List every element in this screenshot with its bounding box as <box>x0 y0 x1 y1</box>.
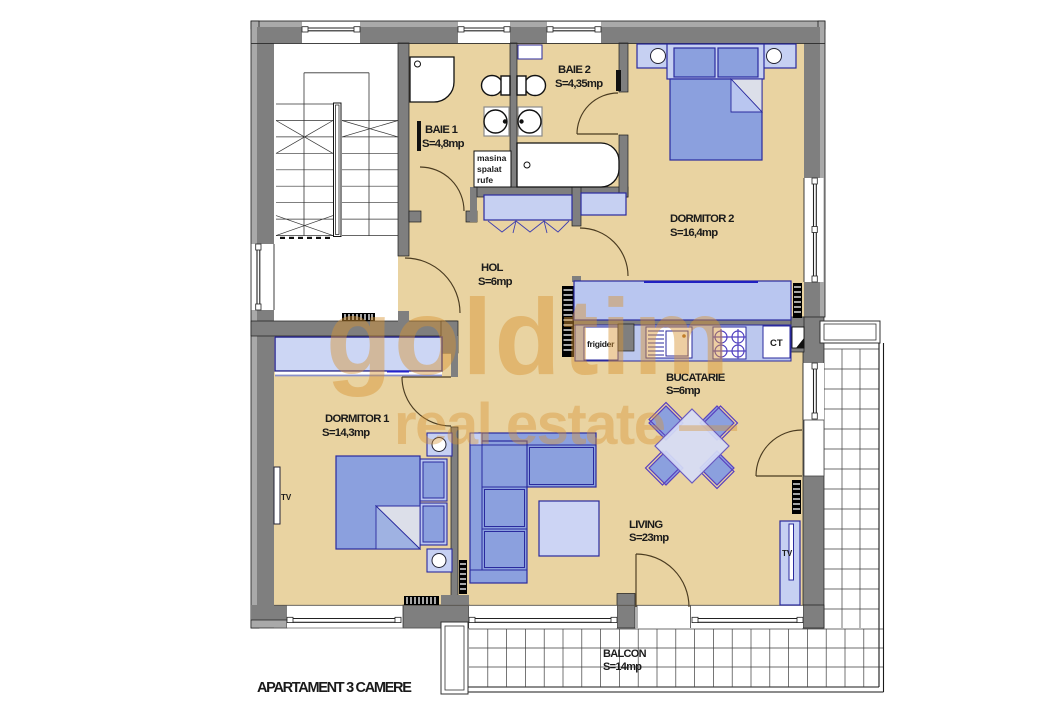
svg-text:LIVING: LIVING <box>629 519 663 531</box>
svg-text:S=14mp: S=14mp <box>603 661 642 673</box>
svg-text:DORMITOR 2: DORMITOR 2 <box>670 213 734 225</box>
svg-text:S=14,3mp: S=14,3mp <box>322 427 370 439</box>
svg-text:S=23mp: S=23mp <box>629 532 669 544</box>
svg-text:BALCON: BALCON <box>603 648 647 660</box>
svg-text:real estate —: real estate — <box>394 392 737 457</box>
svg-text:S=4,8mp: S=4,8mp <box>422 138 465 150</box>
svg-text:masina: masina <box>477 153 507 163</box>
svg-text:APARTAMENT 3 CAMERE: APARTAMENT 3 CAMERE <box>257 680 412 696</box>
svg-text:CT: CT <box>770 338 783 349</box>
svg-text:HOL: HOL <box>481 262 504 274</box>
svg-text:rufe: rufe <box>477 175 493 185</box>
svg-text:BAIE 1: BAIE 1 <box>425 124 458 136</box>
svg-text:S=4,35mp: S=4,35mp <box>555 78 603 90</box>
svg-text:TV: TV <box>782 549 793 558</box>
svg-text:S=16,4mp: S=16,4mp <box>670 227 718 239</box>
svg-text:spalat: spalat <box>477 164 502 174</box>
svg-text:goldtim: goldtim <box>326 276 731 397</box>
svg-text:TV: TV <box>281 493 292 502</box>
svg-text:BAIE 2: BAIE 2 <box>558 64 591 76</box>
svg-text:DORMITOR 1: DORMITOR 1 <box>325 413 389 425</box>
